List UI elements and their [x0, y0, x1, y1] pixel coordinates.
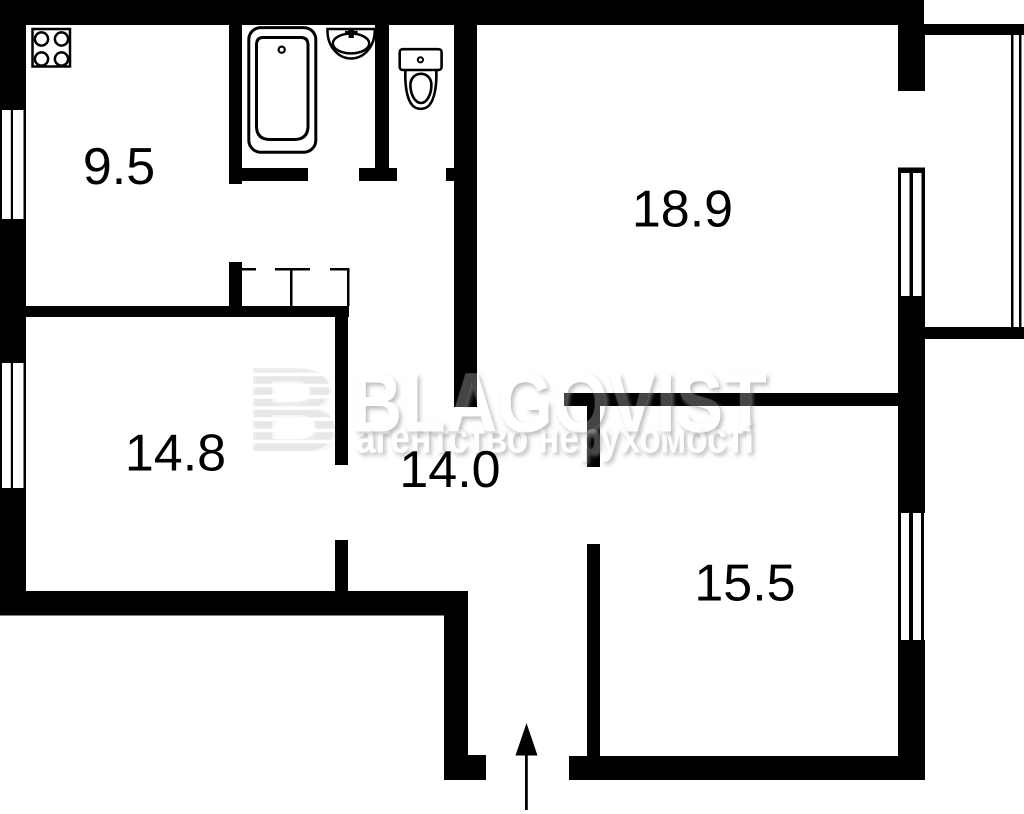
svg-text:9.5: 9.5 — [83, 138, 155, 196]
svg-text:18.9: 18.9 — [632, 181, 733, 239]
svg-text:14.8: 14.8 — [125, 425, 226, 483]
svg-text:15.5: 15.5 — [694, 555, 795, 613]
svg-text:14.0: 14.0 — [399, 441, 500, 499]
svg-text:B: B — [244, 342, 340, 478]
